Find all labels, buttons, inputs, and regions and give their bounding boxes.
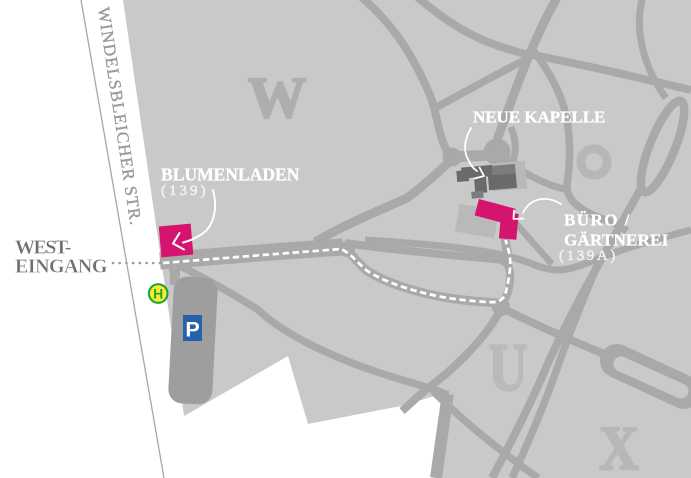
svg-text:(139A): (139A): [559, 248, 618, 264]
svg-text:GÄRTNEREI: GÄRTNEREI: [564, 231, 671, 250]
svg-text:U: U: [488, 330, 527, 405]
svg-text:(139): (139): [161, 183, 209, 199]
svg-text:BÜRO /: BÜRO /: [564, 211, 632, 230]
svg-text:NEUE KAPELLE: NEUE KAPELLE: [473, 108, 608, 127]
svg-text:BLUMENLADEN: BLUMENLADEN: [161, 165, 302, 185]
svg-text:W: W: [248, 65, 306, 130]
svg-text:H: H: [153, 286, 163, 302]
svg-text:P: P: [185, 318, 199, 342]
svg-text:EINGANG: EINGANG: [15, 256, 110, 278]
svg-text:X: X: [599, 414, 638, 478]
